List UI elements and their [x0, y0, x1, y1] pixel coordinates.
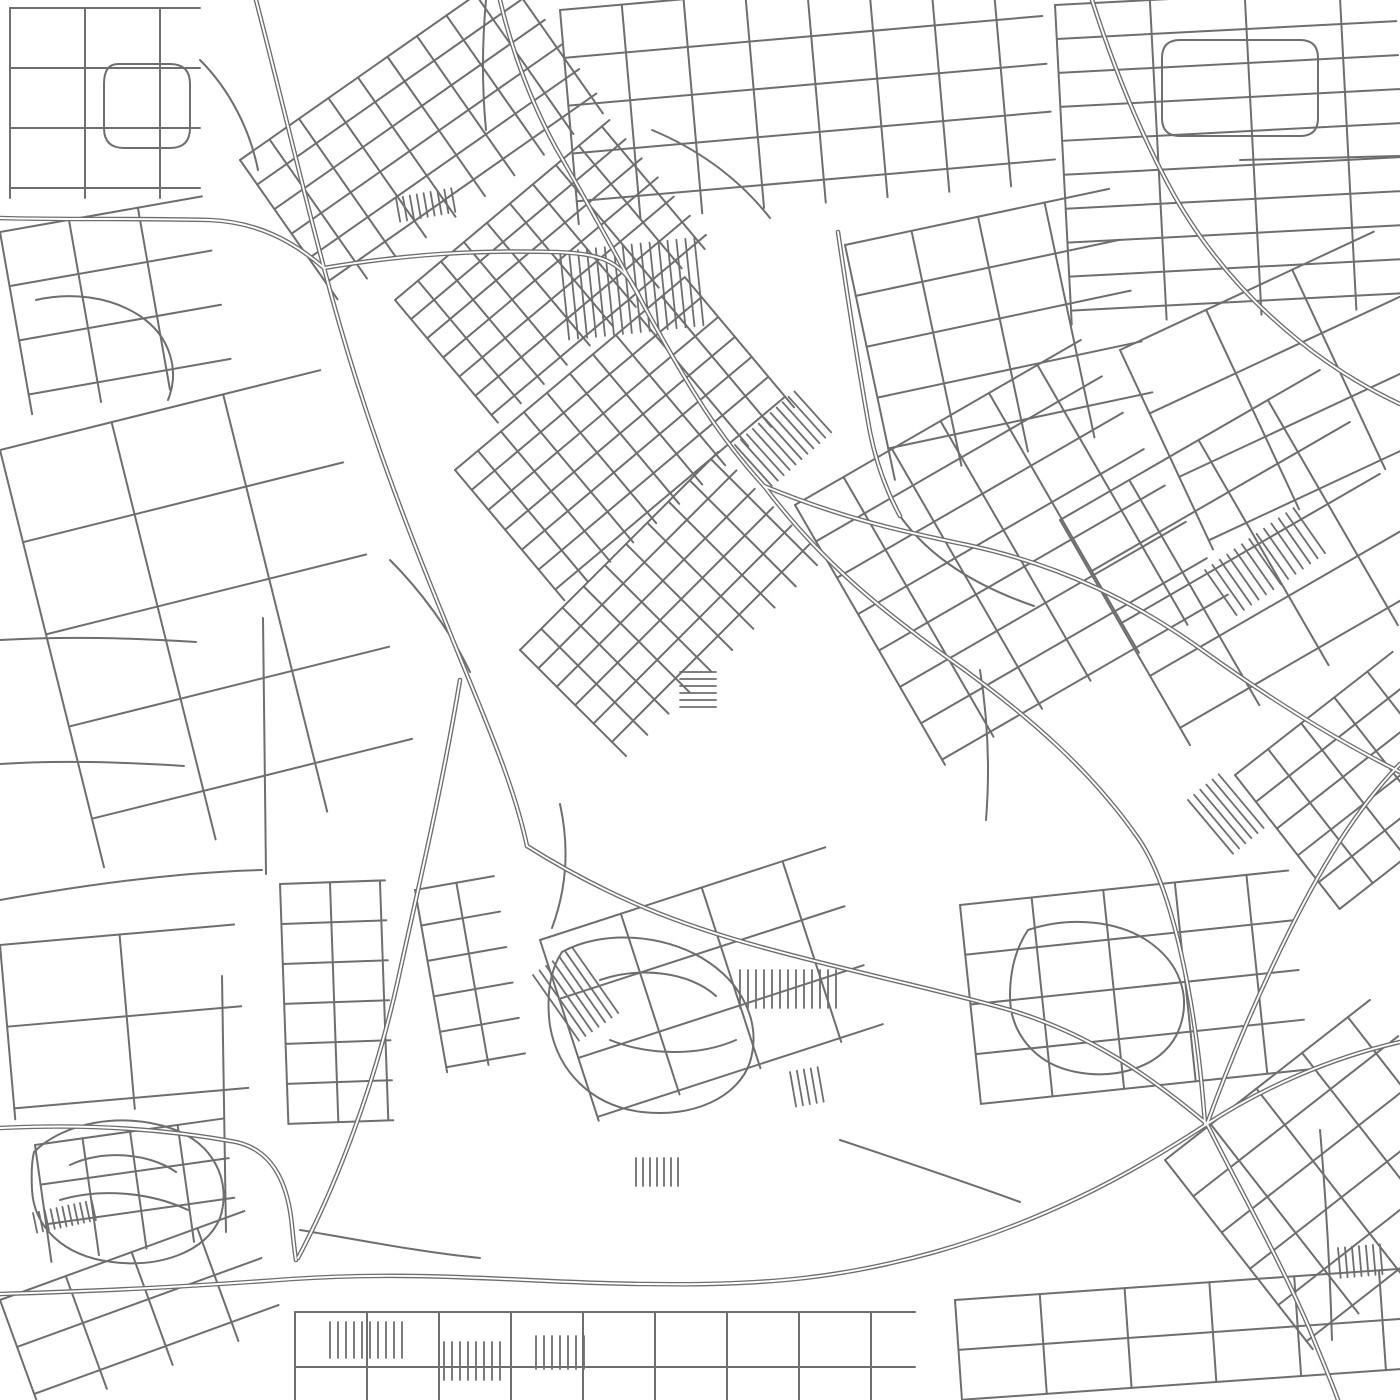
map-layer-field-parcels	[0, 370, 424, 1119]
city-map-svg	[0, 0, 1400, 1400]
map-layer-hatched-blocks	[33, 188, 1382, 1380]
map-canvas	[0, 0, 1400, 1400]
